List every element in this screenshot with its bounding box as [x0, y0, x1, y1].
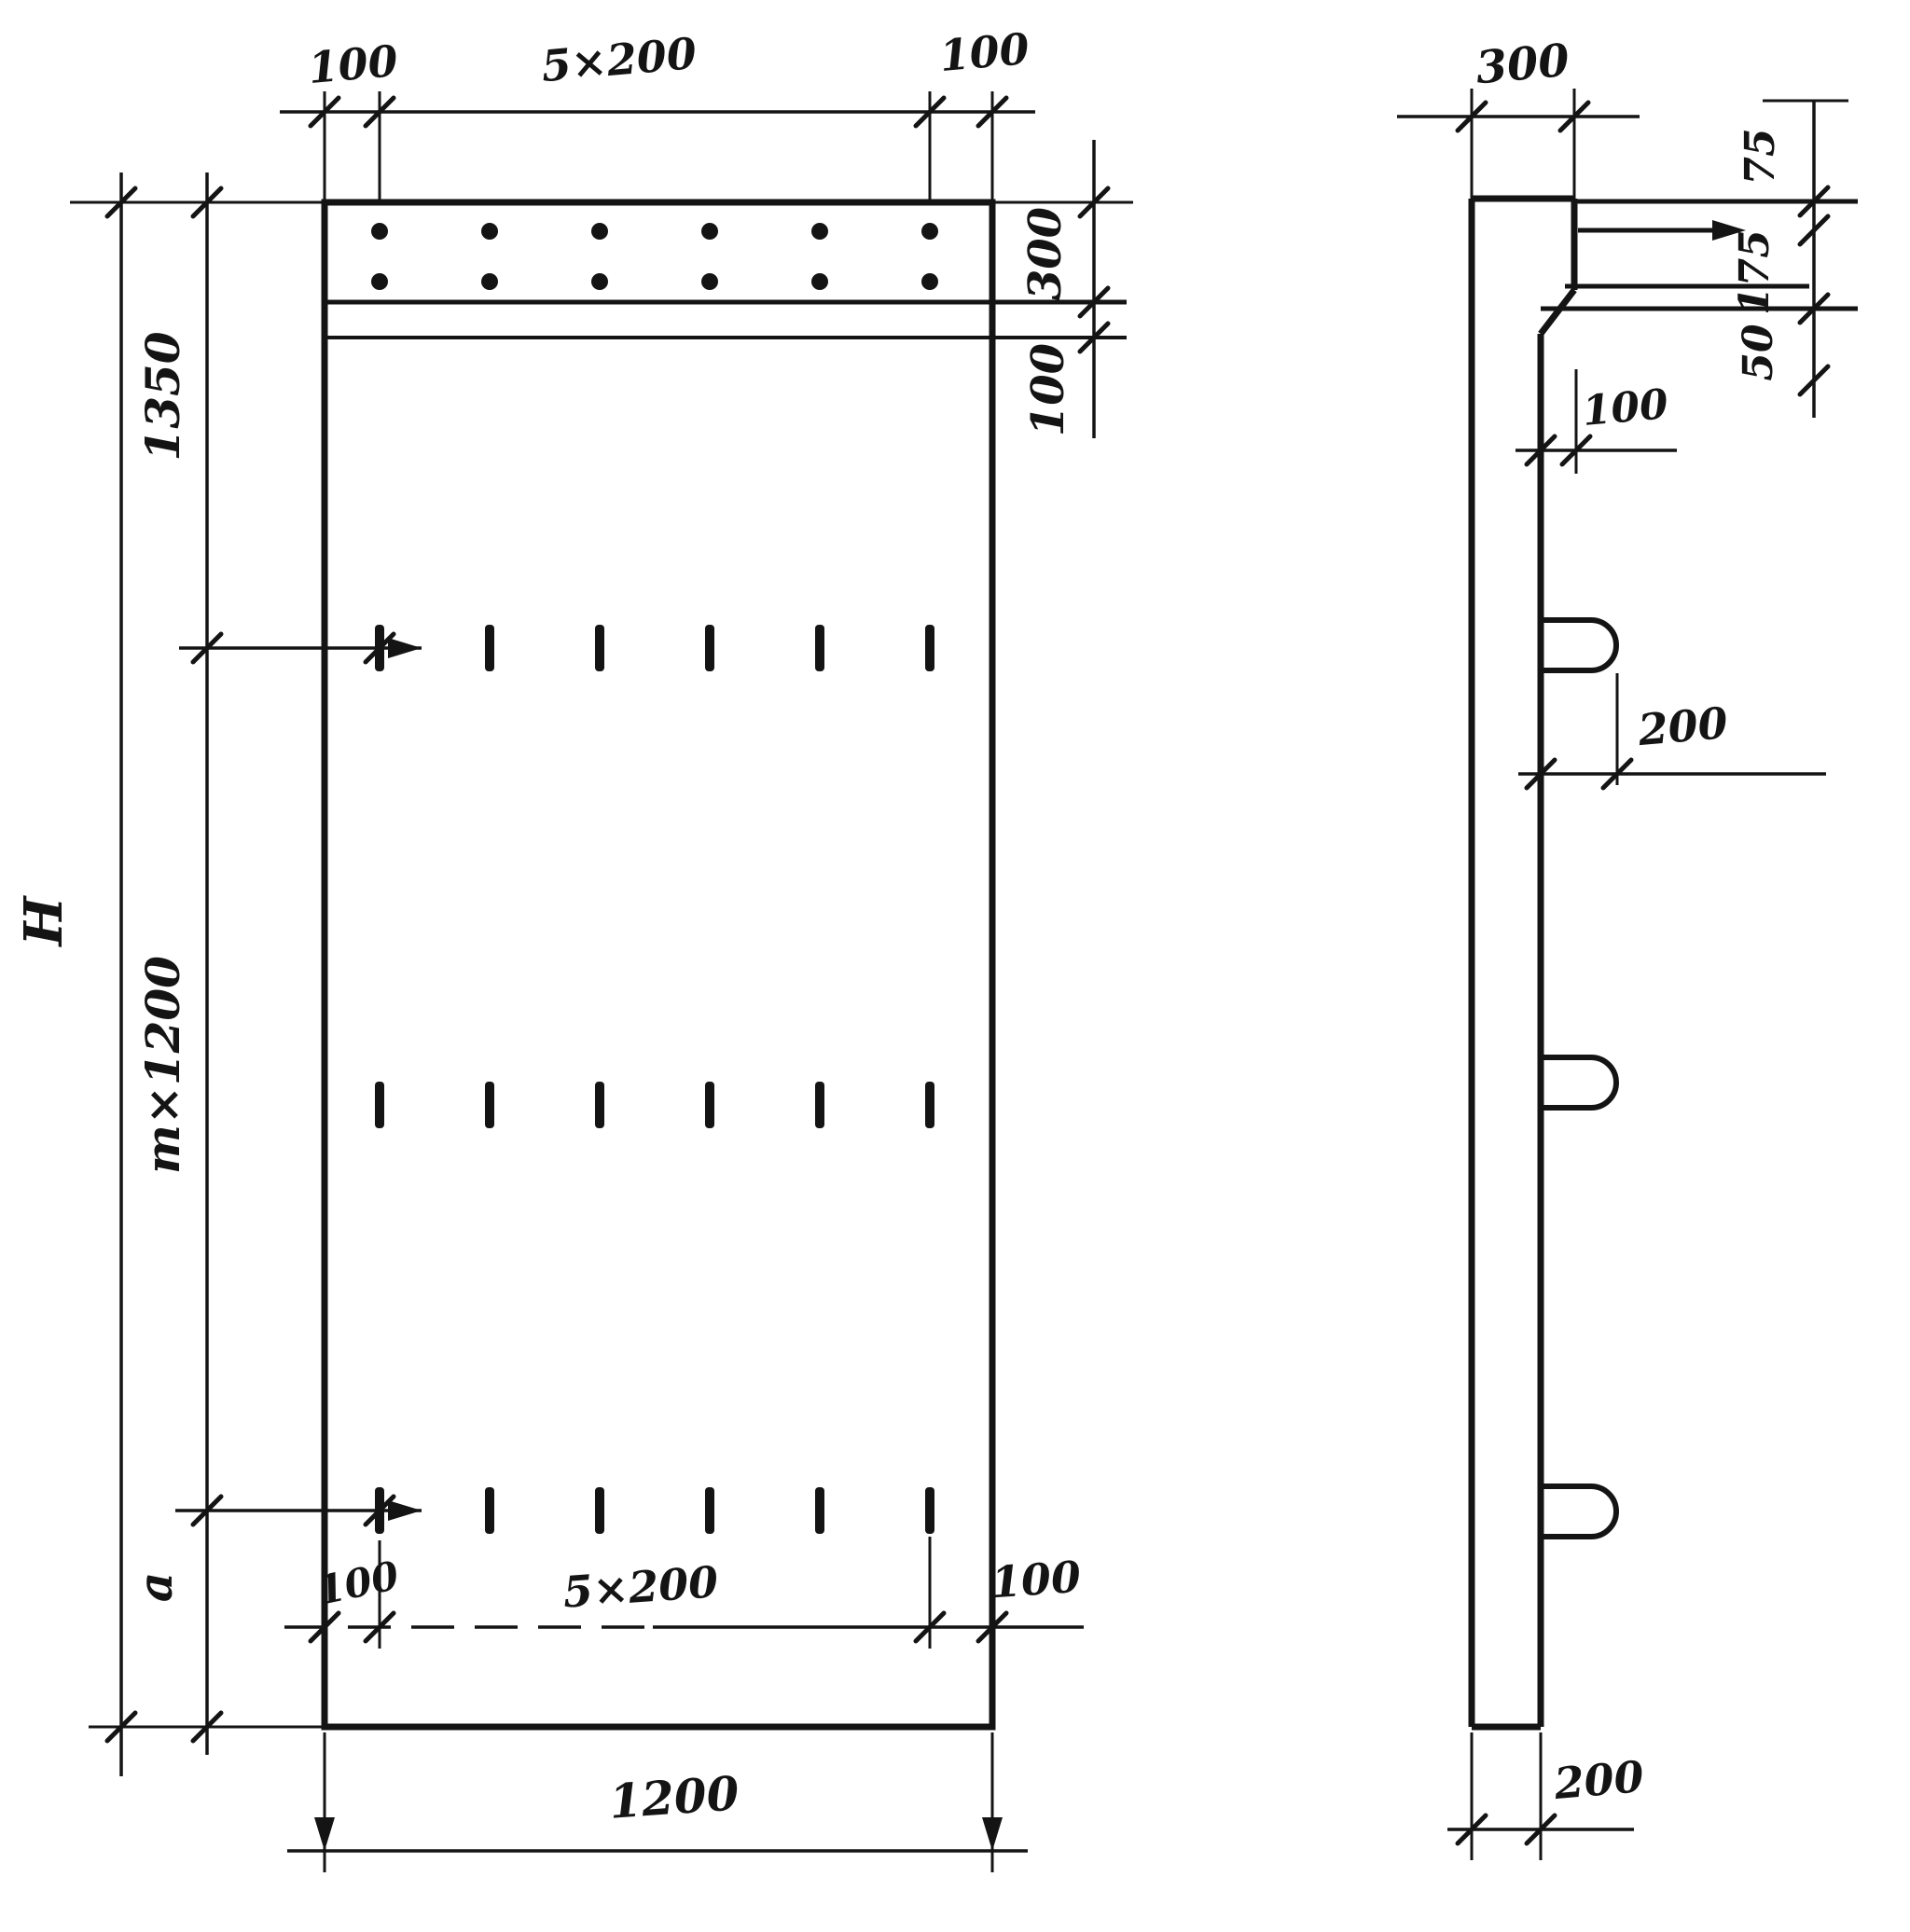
dim-overall-H: H	[13, 894, 75, 947]
side-bar-dimensions: 75 175 50	[1731, 101, 1848, 418]
front-top-dimension: 100 5×200 100	[280, 23, 1035, 202]
anchor-bars	[1541, 201, 1858, 309]
dim-a: a	[128, 1572, 183, 1602]
dim-loop-200: 200	[1635, 697, 1729, 755]
dim-width-1200: 1200	[607, 1765, 740, 1829]
panel-outline	[325, 202, 992, 1727]
dim-top-right-100: 100	[937, 23, 1031, 81]
side-loop-dimension: 200	[1518, 673, 1826, 788]
dim-bar-50: 50	[1735, 324, 1782, 381]
dim-1350: 1350	[135, 331, 190, 461]
technical-drawing-sheet: 100 5×200 100 300 100	[0, 0, 1910, 1932]
dim-side-300: 300	[1474, 34, 1571, 95]
dim-top-5x200: 5×200	[539, 28, 699, 91]
front-bottom-dimension: 1200	[287, 1732, 1028, 1872]
head-chamfer	[1541, 290, 1574, 334]
side-top-dimension: 300	[1397, 34, 1640, 131]
front-left-dimensions: H 1350 m×1200 a	[13, 172, 422, 1776]
dim-band-100: 100	[1022, 343, 1074, 436]
dim-band-300: 300	[1019, 207, 1072, 300]
slot-rows	[375, 625, 934, 1534]
front-view: 100 5×200 100 300 100	[13, 23, 1133, 1872]
dim-top-left-100: 100	[306, 35, 399, 93]
dim-bottom-5x200: 5×200	[561, 1556, 720, 1617]
front-right-dimension: 300 100	[1019, 140, 1108, 438]
anchor-dots	[371, 223, 938, 290]
front-bottom-inner-dimension: 100 5×200 100	[284, 1537, 1084, 1649]
panel-drawing: 100 5×200 100 300 100	[0, 0, 1910, 1932]
dim-step-100: 100	[1581, 380, 1670, 435]
dim-bar-75: 75	[1737, 128, 1784, 185]
side-bottom-dimension: 200	[1447, 1732, 1646, 1860]
side-view: 300 75 175 50 100	[1397, 34, 1858, 1860]
lifting-loops	[1541, 620, 1616, 1537]
dim-bar-175: 175	[1731, 229, 1779, 315]
dim-mx1200: m×1200	[135, 956, 190, 1174]
dim-bottom-right-100: 100	[990, 1552, 1083, 1608]
dim-bottom-200: 200	[1551, 1751, 1645, 1809]
